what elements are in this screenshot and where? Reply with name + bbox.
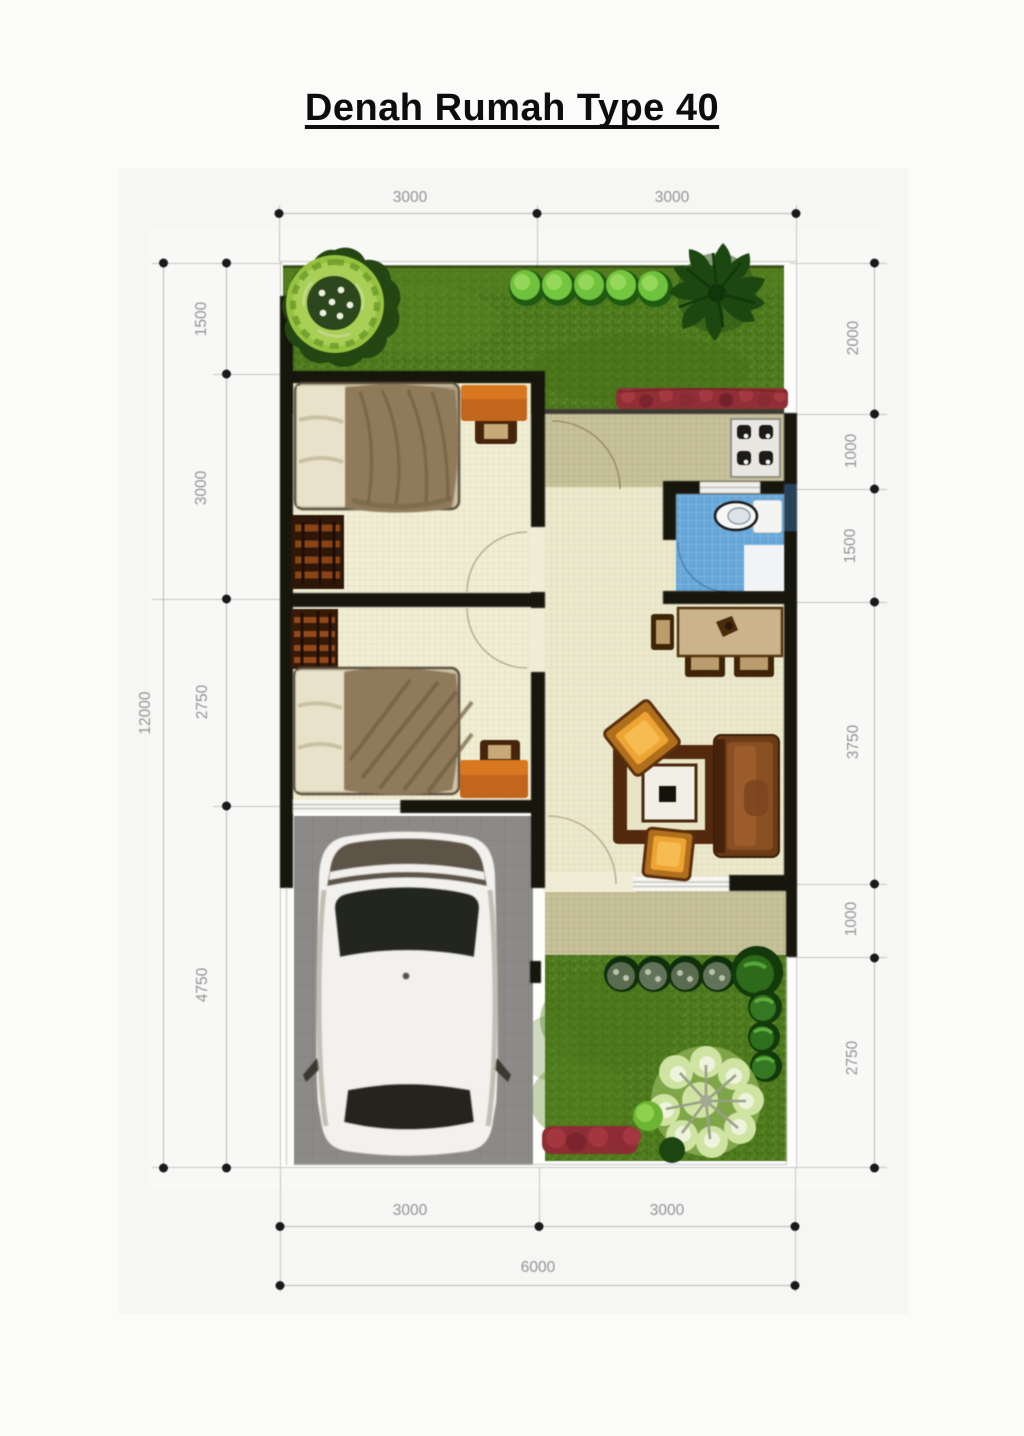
svg-text:1500: 1500: [193, 301, 210, 336]
svg-text:3000: 3000: [655, 189, 690, 206]
svg-text:2000: 2000: [845, 320, 862, 355]
svg-text:4750: 4750: [194, 967, 211, 1002]
svg-text:3000: 3000: [393, 1202, 428, 1219]
svg-text:3750: 3750: [845, 724, 862, 759]
svg-text:3000: 3000: [650, 1202, 685, 1219]
svg-text:3000: 3000: [193, 470, 210, 505]
svg-text:1000: 1000: [843, 433, 860, 468]
svg-text:2750: 2750: [194, 684, 211, 719]
svg-text:6000: 6000: [521, 1259, 556, 1276]
svg-text:1000: 1000: [843, 901, 860, 936]
svg-text:2750: 2750: [844, 1040, 861, 1075]
svg-text:1500: 1500: [842, 528, 859, 563]
svg-text:3000: 3000: [393, 189, 428, 206]
svg-text:12000: 12000: [137, 691, 154, 734]
